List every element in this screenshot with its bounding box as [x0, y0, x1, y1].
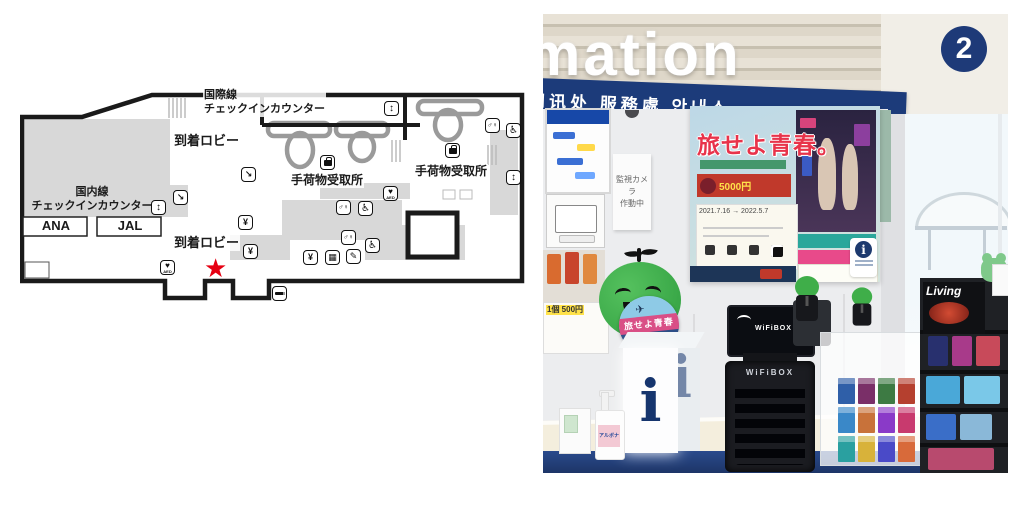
brochure[interactable]	[878, 378, 895, 404]
mascot-eye	[614, 287, 632, 301]
rack-brochure[interactable]	[976, 336, 1000, 366]
info-i-letter: i	[639, 372, 661, 430]
rack-shelf	[920, 370, 1008, 374]
brochure[interactable]	[858, 436, 875, 462]
camera-notice-sign: 監視カメラ 作動中	[613, 154, 651, 230]
rack-brochure[interactable]	[928, 448, 994, 470]
poster-title: 旅せよ青春。	[697, 126, 841, 160]
rack-brochure[interactable]	[928, 336, 948, 366]
label-baggage-claim-left: 手荷物受取所	[290, 173, 364, 188]
aed-icon: ♥ AED	[160, 260, 175, 275]
logo-chip	[760, 269, 782, 279]
label-baggage-claim-right: 手荷物受取所	[414, 164, 488, 179]
coin-locker-icon: ▦	[325, 250, 340, 265]
poster-footer-band	[690, 266, 796, 282]
rack-brochure[interactable]	[960, 414, 992, 440]
pen-writing-icon: ✎	[346, 249, 361, 264]
hand-drawn-map-paper	[546, 194, 605, 248]
wheelchair-icon: ♿	[365, 238, 380, 253]
wheelchair-icon: ♿	[358, 201, 373, 216]
currency-exchange-icon: ¥	[238, 215, 253, 230]
living-magazine[interactable]: Living	[923, 282, 985, 334]
rack-brochure[interactable]	[952, 336, 972, 366]
wheelchair-icon: ♿	[506, 123, 521, 138]
poster-header	[547, 110, 609, 124]
neon-sign	[854, 124, 870, 146]
label-domestic-checkin: 国内線 チェックインカウンター	[22, 186, 162, 214]
brochure[interactable]	[898, 378, 915, 404]
leaflet	[547, 254, 561, 284]
currency-exchange-icon: ¥	[303, 250, 318, 265]
rack-shelf	[920, 443, 1008, 447]
information-light-cube: i i	[623, 344, 700, 456]
aed-icon: ♥ AED	[383, 186, 398, 201]
poster-info-panel: 2021.7.16 → 2022.5.7	[696, 204, 798, 270]
map-note	[559, 235, 595, 243]
restroom-icon: ♂♀	[336, 200, 351, 215]
figurine-tie	[861, 304, 864, 313]
brochure[interactable]	[838, 436, 855, 462]
label-international-checkin: 国際線 チェックインカウンター	[203, 89, 326, 117]
diagram-chip	[575, 172, 595, 179]
magazine-title: Living	[926, 284, 961, 298]
label-arrival-lobby-upper: 到着ロビー	[173, 133, 240, 149]
magazine-cover-photo	[929, 302, 969, 324]
leaflet	[583, 254, 597, 284]
brochure[interactable]	[898, 436, 915, 462]
cube-side-face: i	[678, 348, 700, 451]
brochure[interactable]	[898, 407, 915, 433]
price-sign: 1個 500円	[543, 302, 609, 354]
suitcase-glyph	[449, 148, 457, 154]
price-note: 1個 500円	[546, 305, 584, 315]
card-text-line	[855, 264, 873, 266]
rack-brochure[interactable]	[926, 376, 960, 404]
counter-number-badge: 2	[941, 26, 987, 72]
brochure-row	[824, 407, 928, 433]
brochure[interactable]	[838, 407, 855, 433]
label-ana: ANA	[23, 218, 89, 234]
leaflet	[565, 252, 579, 284]
wifi-icon	[737, 315, 751, 325]
current-location-star: ★	[204, 255, 227, 281]
currency-exchange-icon: ¥	[243, 244, 258, 259]
canopy-column	[928, 230, 931, 270]
wifibox-router-slots[interactable]	[735, 383, 805, 465]
aed-label: AED	[386, 196, 394, 200]
information-counter-photo: mation 2 问讯处 服務處 안내소	[543, 14, 1008, 473]
diagram-chip	[577, 144, 595, 151]
airplane-glyph: ✈	[635, 302, 646, 316]
brochure[interactable]	[838, 378, 855, 404]
sanitizer-label: アルボナース	[598, 425, 620, 447]
hand-sanitizer-bottle[interactable]: アルボナース	[595, 410, 625, 460]
poster-subtitle-bar	[700, 160, 786, 169]
smoking-room-icon	[272, 286, 287, 301]
travel-campaign-poster: 旅せよ青春。 5000円 2021.7.16 → 2022.5.7	[690, 106, 880, 282]
suitcase-glyph	[324, 160, 332, 166]
poster-price-band: 5000円	[697, 174, 791, 197]
text-line	[703, 227, 783, 229]
brochure[interactable]	[858, 407, 875, 433]
brochure[interactable]	[878, 436, 895, 462]
baggage-icon	[320, 155, 335, 170]
elevator-icon: ↕	[151, 200, 166, 215]
escalator-icon: ↘	[241, 167, 256, 182]
diagram-chip	[553, 132, 575, 139]
mascot-figurine	[795, 276, 819, 321]
airport-floor-map: 国際線 チェックインカウンター 到着ロビー 手荷物受取所 手荷物受取所 国内線 …	[20, 85, 535, 330]
label-arrival-lobby-lower: 到着ロビー	[173, 235, 240, 251]
timeline-icon	[705, 245, 715, 255]
price-coin	[700, 178, 716, 194]
timeline-icon	[749, 245, 759, 255]
aed-label: AED	[163, 270, 171, 274]
baggage-icon	[445, 143, 460, 158]
restroom-icon: ♂♀	[341, 230, 356, 245]
brochure[interactable]	[858, 378, 875, 404]
brochure-stand	[820, 332, 932, 466]
poster-period: 2021.7.16 → 2022.5.7	[699, 208, 768, 215]
rack-brochure[interactable]	[926, 414, 956, 440]
timeline-icon	[727, 245, 737, 255]
card-text-line	[855, 260, 873, 262]
brochure-row	[824, 378, 928, 404]
poster-price: 5000円	[719, 178, 751, 193]
qr-code	[771, 245, 783, 257]
figurine-tie	[806, 296, 809, 306]
page: 国際線 チェックインカウンター 到着ロビー 手荷物受取所 手荷物受取所 国内線 …	[0, 0, 1020, 505]
diagram-chip	[557, 158, 583, 165]
poster-person	[842, 144, 858, 210]
mascot-figurine	[852, 287, 872, 325]
cube-front-face: i	[623, 348, 678, 453]
brochure[interactable]	[878, 407, 895, 433]
info-i-letter-side: i	[678, 348, 692, 411]
green-card	[564, 415, 578, 433]
text-line	[703, 235, 769, 237]
detached-structure	[408, 213, 457, 257]
elevator-icon: ↕	[506, 170, 521, 185]
wifibox-screen-brand: WiFiBOX	[755, 325, 792, 332]
small-notice-card	[992, 264, 1008, 296]
map-sketch	[555, 205, 597, 233]
wifibox-body: WiFiBOX	[725, 361, 815, 472]
tourist-info-card: i	[850, 238, 877, 277]
label-jal: JAL	[97, 218, 163, 234]
wifibox-body-brand: WiFiBOX	[725, 368, 815, 377]
escalator-icon: ↘	[173, 190, 188, 205]
brochure-row	[824, 436, 928, 462]
rack-brochure[interactable]	[964, 376, 1000, 404]
cigarette-glyph	[275, 292, 284, 295]
rack-shelf	[920, 408, 1008, 412]
cube-top	[618, 332, 704, 348]
route-map-poster	[545, 108, 611, 194]
restroom-icon: ♂♀	[485, 118, 500, 133]
info-i-icon: i	[855, 241, 872, 258]
card-stand	[559, 408, 591, 454]
elevator-icon: ↕	[384, 101, 399, 116]
